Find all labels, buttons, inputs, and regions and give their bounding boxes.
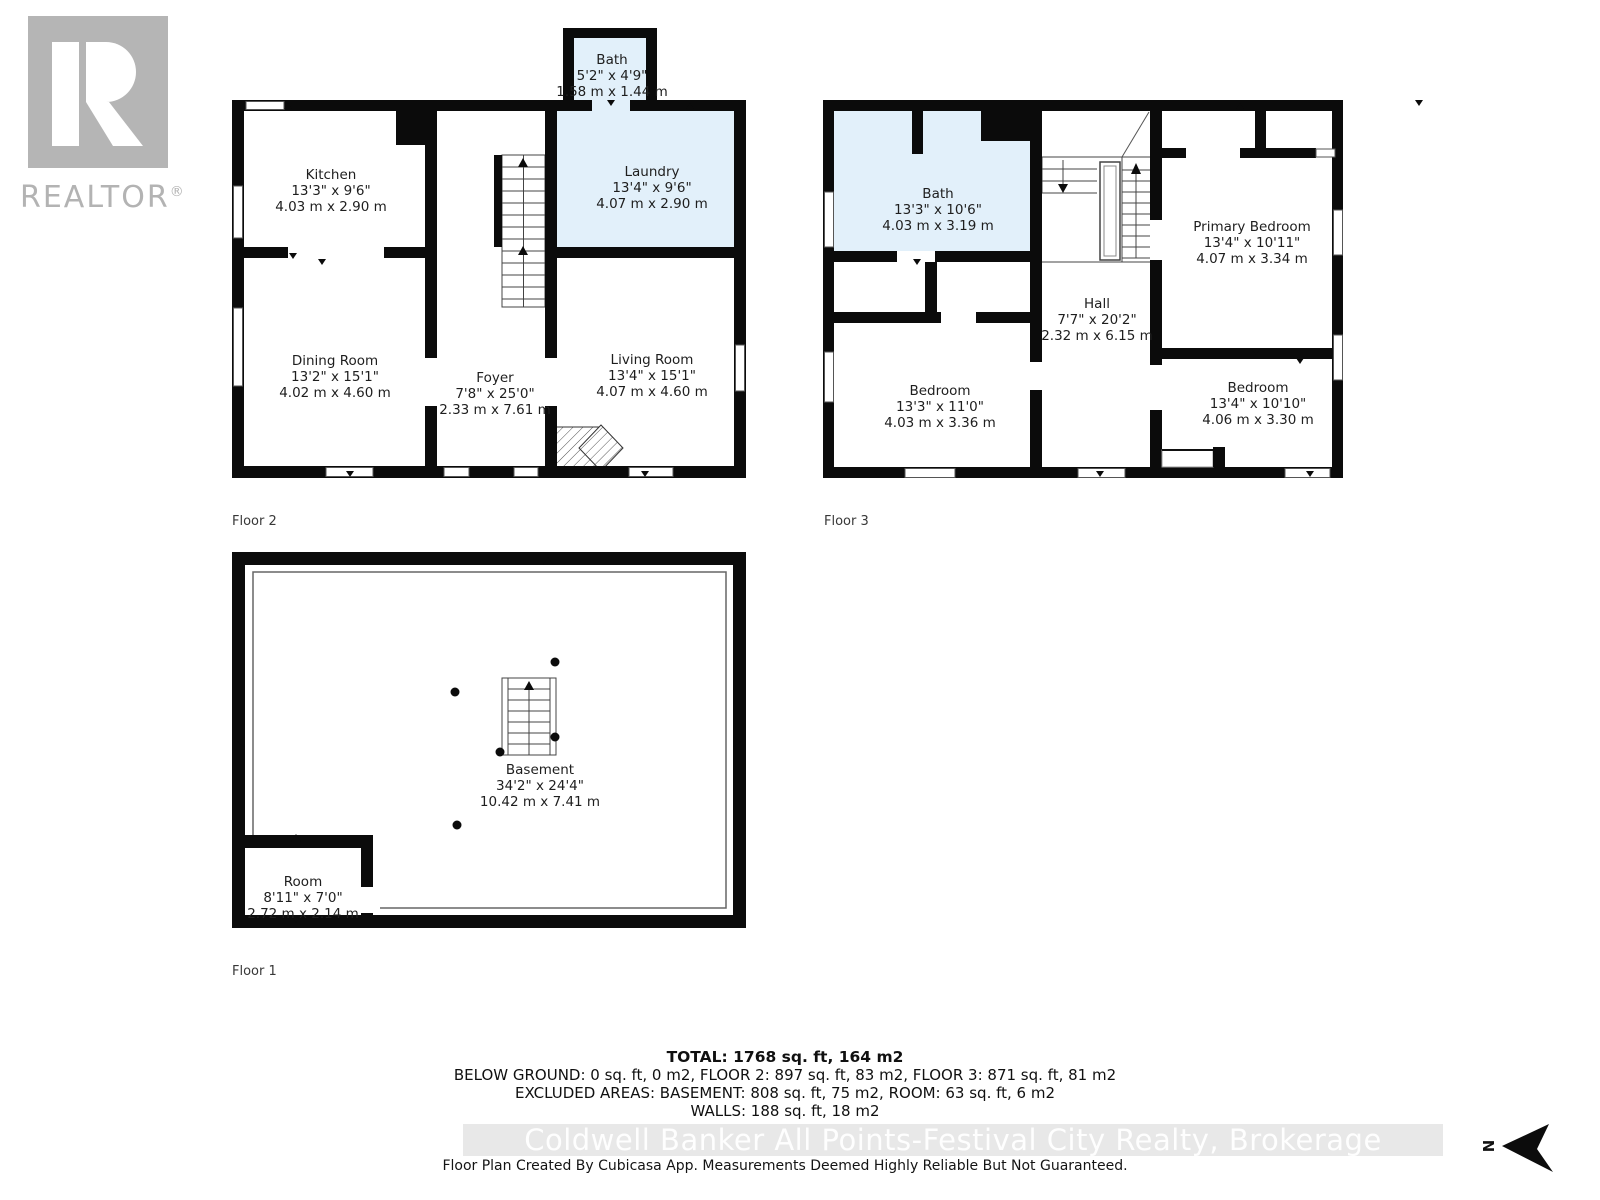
disclaimer-text: Floor Plan Created By Cubicasa App. Meas… bbox=[300, 1158, 1270, 1174]
summary-walls: WALLS: 188 sq. ft, 18 m2 bbox=[300, 1102, 1270, 1120]
room-label-bath-f2: Bath5'2" x 4'9"1.58 m x 1.44 m bbox=[556, 52, 668, 100]
floor3-stairs-icon bbox=[1042, 112, 1150, 262]
north-arrow-icon: N bbox=[1480, 1124, 1553, 1172]
north-label: N bbox=[1480, 1140, 1498, 1153]
room-label-basement: Basement34'2" x 24'4"10.42 m x 7.41 m bbox=[480, 762, 600, 810]
room-label-dining: Dining Room13'2" x 15'1"4.02 m x 4.60 m bbox=[279, 353, 391, 401]
floorplan-drawing: N bbox=[0, 0, 1600, 1200]
room-label-hall: Hall7'7" x 20'2"2.32 m x 6.15 m bbox=[1041, 296, 1153, 344]
floor2-stairs-icon bbox=[494, 155, 545, 307]
room-label-living: Living Room13'4" x 15'1"4.07 m x 4.60 m bbox=[596, 352, 708, 400]
area-summary: TOTAL: 1768 sq. ft, 164 m2 BELOW GROUND:… bbox=[300, 1048, 1270, 1120]
summary-excluded: EXCLUDED AREAS: BASEMENT: 808 sq. ft, 75… bbox=[300, 1084, 1270, 1102]
summary-total: TOTAL: 1768 sq. ft, 164 m2 bbox=[300, 1048, 1270, 1066]
room-label-laundry: Laundry13'4" x 9'6"4.07 m x 2.90 m bbox=[596, 164, 708, 212]
fireplace-icon bbox=[549, 425, 623, 471]
room-label-bedroom-right: Bedroom13'4" x 10'10"4.06 m x 3.30 m bbox=[1202, 380, 1314, 428]
brokerage-watermark: Coldwell Banker All Points-Festival City… bbox=[463, 1124, 1443, 1156]
floor3-label: Floor 3 bbox=[824, 514, 869, 529]
floor1-label: Floor 1 bbox=[232, 964, 277, 979]
floor-plan-page: REALTOR® bbox=[0, 0, 1600, 1200]
room-label-bedroom-left: Bedroom13'3" x 11'0"4.03 m x 3.36 m bbox=[884, 383, 996, 431]
closet-icon bbox=[1162, 447, 1225, 467]
room-label-foyer: Foyer7'8" x 25'0"2.33 m x 7.61 m bbox=[439, 370, 551, 418]
floor1-wall-arrows bbox=[237, 557, 741, 923]
room-label-room-f1: Room8'11" x 7'0"2.72 m x 2.14 m bbox=[247, 874, 359, 922]
floor1-plan bbox=[232, 552, 746, 928]
summary-below-ground: BELOW GROUND: 0 sq. ft, 0 m2, FLOOR 2: 8… bbox=[300, 1066, 1270, 1084]
floor1-stairs-icon bbox=[502, 678, 556, 755]
room-label-primary-bedroom: Primary Bedroom13'4" x 10'11"4.07 m x 3.… bbox=[1193, 219, 1311, 267]
room-label-kitchen: Kitchen13'3" x 9'6"4.03 m x 2.90 m bbox=[275, 167, 387, 215]
room-label-bath-f3: Bath13'3" x 10'6"4.03 m x 3.19 m bbox=[882, 186, 994, 234]
floor2-label: Floor 2 bbox=[232, 514, 277, 529]
